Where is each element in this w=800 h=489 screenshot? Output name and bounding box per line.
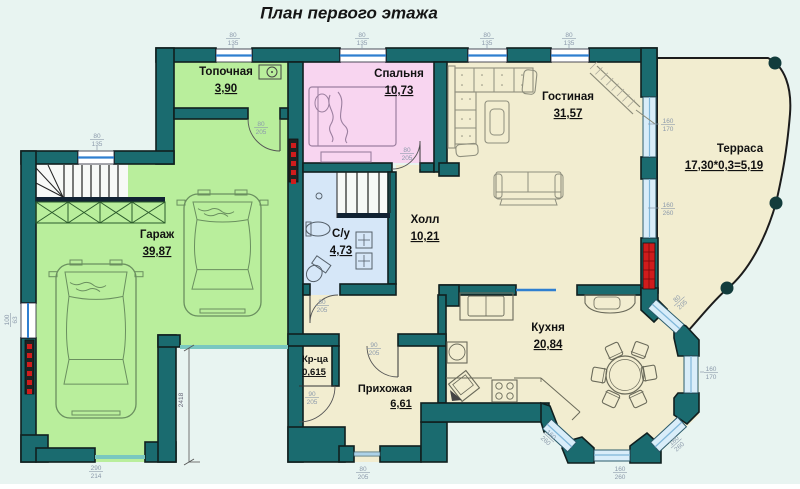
svg-text:10,73: 10,73 xyxy=(385,85,414,97)
svg-text:63: 63 xyxy=(12,316,19,324)
svg-text:План первого этажа: План первого этажа xyxy=(260,4,438,23)
svg-text:290: 290 xyxy=(91,465,102,472)
svg-text:100: 100 xyxy=(4,314,11,325)
svg-text:20,84: 20,84 xyxy=(534,339,563,351)
svg-text:80: 80 xyxy=(358,32,366,39)
svg-text:170: 170 xyxy=(663,126,674,133)
svg-text:205: 205 xyxy=(317,307,328,314)
svg-text:Кухня: Кухня xyxy=(531,322,565,334)
svg-text:80: 80 xyxy=(483,32,491,39)
svg-text:Прихожая: Прихожая xyxy=(358,383,412,395)
svg-text:Топочная: Топочная xyxy=(199,66,253,78)
svg-text:17,30*0,3=5,19: 17,30*0,3=5,19 xyxy=(685,160,763,172)
svg-text:80: 80 xyxy=(93,133,101,140)
svg-text:205: 205 xyxy=(307,399,318,406)
svg-text:6,61: 6,61 xyxy=(390,398,411,410)
svg-text:10,21: 10,21 xyxy=(411,231,440,243)
svg-text:Спальня: Спальня xyxy=(374,68,424,80)
svg-text:205: 205 xyxy=(256,129,267,136)
svg-text:4,73: 4,73 xyxy=(330,245,352,257)
svg-text:90: 90 xyxy=(370,342,378,349)
svg-text:160: 160 xyxy=(663,118,674,125)
svg-text:39,87: 39,87 xyxy=(143,246,172,258)
svg-text:170: 170 xyxy=(706,374,717,381)
svg-text:С/у: С/у xyxy=(332,228,351,240)
svg-text:160: 160 xyxy=(615,466,626,473)
svg-text:Гараж: Гараж xyxy=(140,229,175,241)
svg-text:160: 160 xyxy=(663,202,674,209)
svg-text:214: 214 xyxy=(91,473,102,480)
svg-text:80: 80 xyxy=(318,299,326,306)
svg-text:Холл: Холл xyxy=(411,214,440,226)
svg-text:Кр-ца: Кр-ца xyxy=(302,354,329,365)
svg-text:160: 160 xyxy=(706,366,717,373)
svg-text:Гостиная: Гостиная xyxy=(542,91,594,103)
svg-text:31,57: 31,57 xyxy=(554,108,583,120)
svg-text:0,615: 0,615 xyxy=(302,367,326,378)
svg-text:205: 205 xyxy=(369,350,380,357)
svg-text:80: 80 xyxy=(229,32,237,39)
svg-text:Терраса: Терраса xyxy=(717,143,764,155)
svg-text:80: 80 xyxy=(359,466,367,473)
svg-text:2418: 2418 xyxy=(178,392,185,407)
svg-text:205: 205 xyxy=(402,155,413,162)
svg-text:80: 80 xyxy=(257,121,265,128)
svg-text:80: 80 xyxy=(565,32,573,39)
svg-text:90: 90 xyxy=(308,391,316,398)
svg-text:205: 205 xyxy=(358,474,369,481)
svg-text:260: 260 xyxy=(663,210,674,217)
svg-text:3,90: 3,90 xyxy=(215,83,237,95)
svg-text:80: 80 xyxy=(403,147,411,154)
svg-text:260: 260 xyxy=(615,474,626,481)
